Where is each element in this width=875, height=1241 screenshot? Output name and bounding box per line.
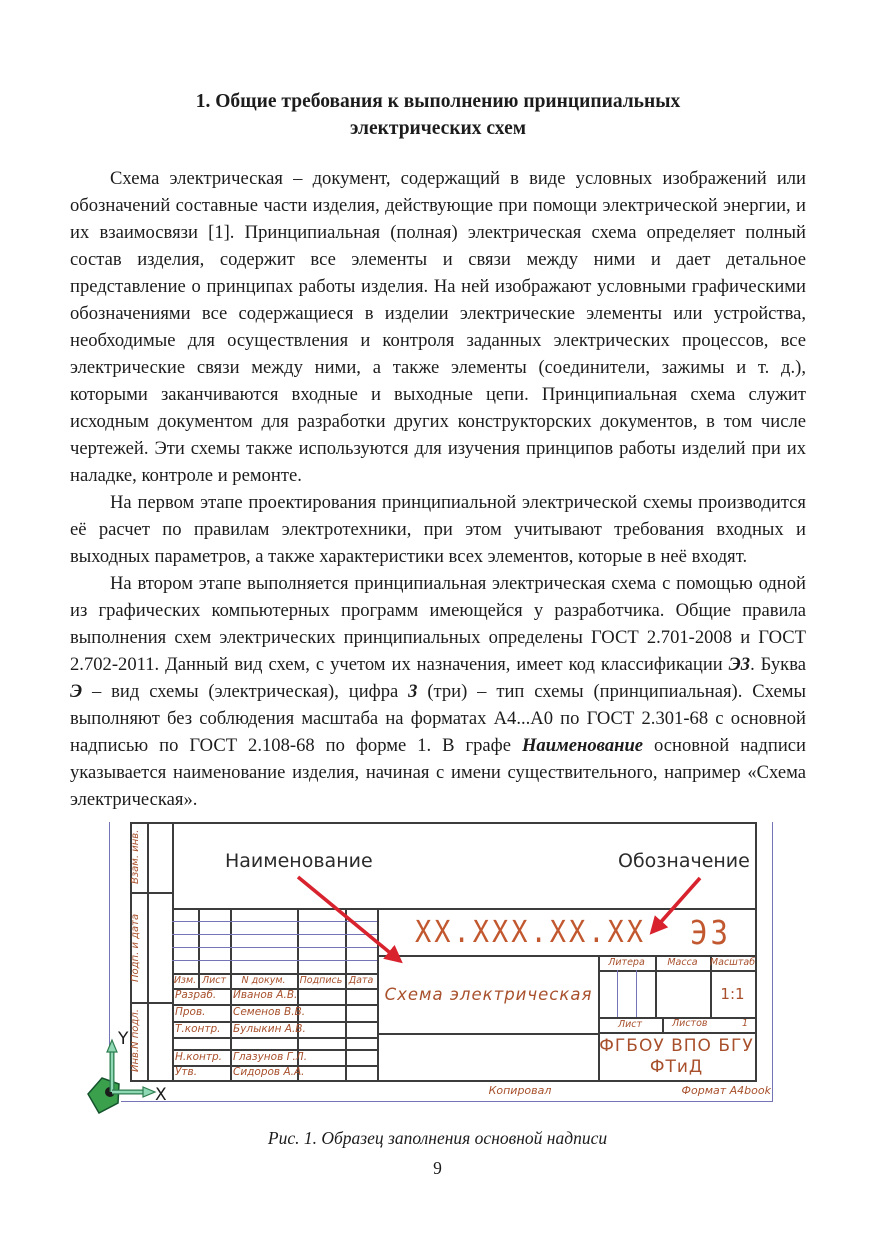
paragraph-3-text: . Буква <box>750 654 806 675</box>
y-axis-label: Y <box>117 1029 129 1049</box>
section-title-line1: 1. Общие требования к выполнению принцип… <box>70 88 806 115</box>
paragraph-3-text: – вид схемы (электрическая), цифра <box>82 681 408 702</box>
page-number: 9 <box>0 1158 875 1179</box>
body-text: Схема электрическая – документ, содержащ… <box>70 165 806 813</box>
document-page: 1. Общие требования к выполнению принцип… <box>0 0 875 1241</box>
x-axis-arrowhead <box>143 1087 155 1097</box>
paragraph-1: Схема электрическая – документ, содержащ… <box>70 165 806 489</box>
paragraph-3-text: На втором этапе выполняется принципиальн… <box>70 573 806 675</box>
section-title: 1. Общие требования к выполнению принцип… <box>70 88 806 142</box>
section-title-line2: электрических схем <box>70 115 806 142</box>
arrow-to-designation-cell <box>652 878 700 932</box>
letter-e: Э <box>70 681 82 702</box>
y-axis-arrowhead <box>107 1040 117 1052</box>
paragraph-3: На втором этапе выполняется принципиальн… <box>70 570 806 813</box>
figure-caption: Рис. 1. Образец заполнения основной надп… <box>0 1128 875 1149</box>
figure-title-block-sample: Взам. инв. Подп. и дата Инв.N подл. Изм. <box>85 818 805 1118</box>
paragraph-2: На первом этапе проектирования принципиа… <box>70 489 806 570</box>
text-column: 1. Общие требования к выполнению принцип… <box>70 0 806 813</box>
ucs-axis-icon: Y X <box>85 1026 185 1121</box>
callout-arrows <box>85 818 805 1118</box>
x-axis-label: X <box>155 1085 167 1105</box>
word-naimenovanie: Наименование <box>522 735 643 756</box>
arrow-to-name-cell <box>298 877 400 961</box>
code-e3: Э3 <box>729 654 750 675</box>
